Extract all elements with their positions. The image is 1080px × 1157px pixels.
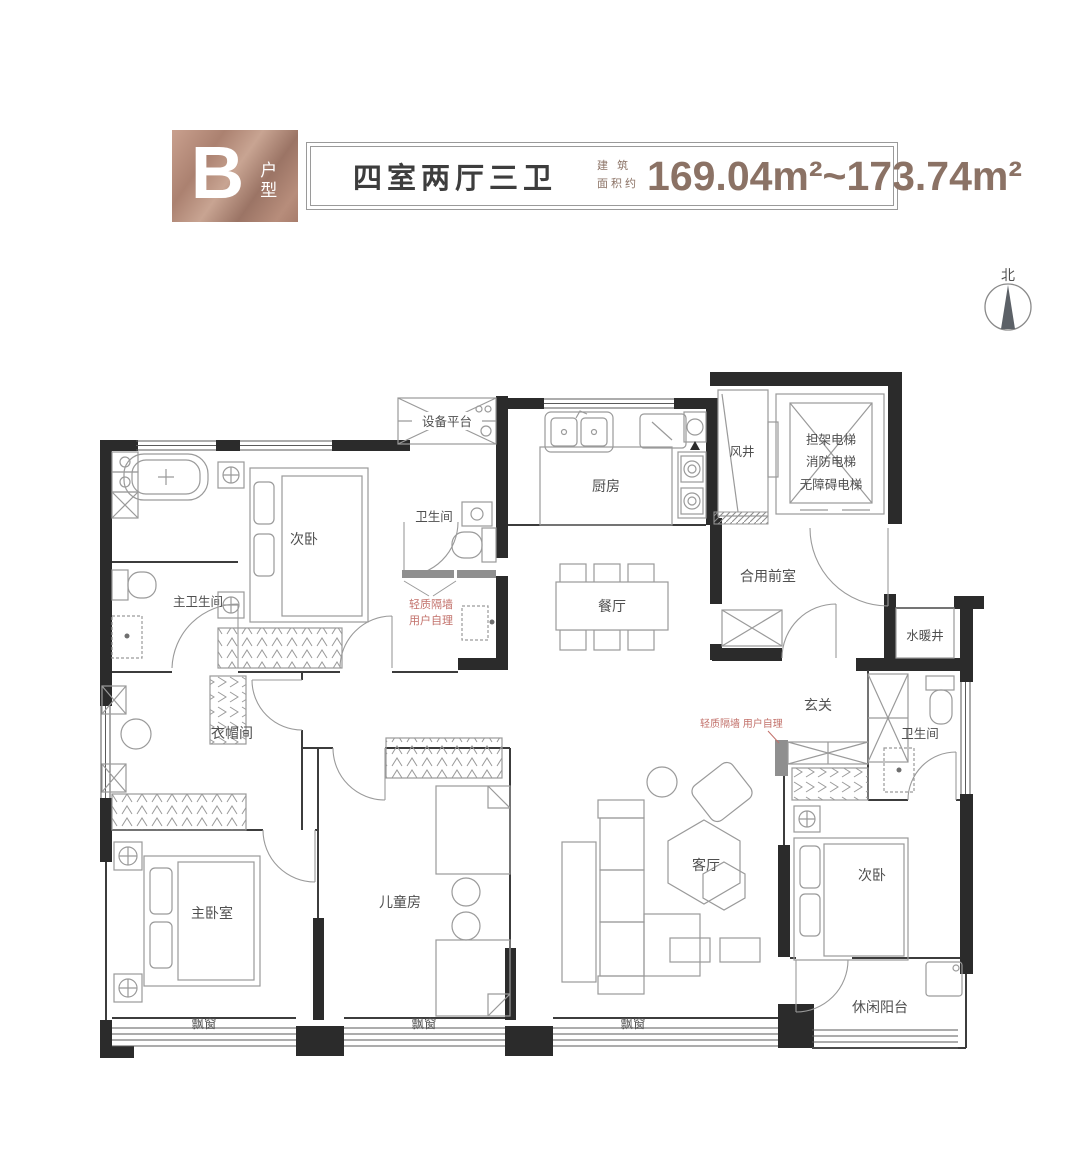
entry-label: 玄关 bbox=[804, 697, 832, 713]
dining-room: 餐厅 bbox=[556, 564, 668, 650]
master-bathroom-label: 主卫生间 bbox=[173, 595, 223, 609]
wind-shaft-label: 风井 bbox=[729, 445, 754, 459]
wind-shaft: 风井 bbox=[714, 390, 768, 524]
balcony-window-band bbox=[812, 1030, 958, 1048]
bathroom-top-label: 卫生间 bbox=[415, 510, 453, 524]
leisure-balcony: 休闲阳台 bbox=[852, 962, 962, 1015]
elevator-shaft: 担架电梯 消防电梯 无障碍电梯 bbox=[768, 394, 884, 514]
bathroom-right: 卫生间 bbox=[868, 674, 954, 792]
cloakroom-label: 衣帽间 bbox=[211, 725, 253, 741]
elevator-label-3: 无障碍电梯 bbox=[800, 477, 863, 492]
bedroom2-top: 次卧 bbox=[218, 462, 368, 668]
living-room-label: 客厅 bbox=[692, 857, 720, 873]
bathroom-right-label: 卫生间 bbox=[901, 727, 939, 741]
plumbing-shaft: 水暖井 bbox=[896, 608, 954, 658]
equipment-platform: 设备平台 bbox=[398, 398, 496, 444]
bay-window-band-living bbox=[553, 1028, 778, 1046]
partition-note-2: 轻质隔墙 用户自理 bbox=[700, 717, 783, 730]
bay-window-label-3: 飘窗 bbox=[620, 1017, 645, 1031]
bathroom-top: 卫生间 轻质隔墙 用户自理 bbox=[402, 502, 496, 640]
bay-window-label-1: 飘窗 bbox=[191, 1017, 216, 1031]
bay-window-labels: 飘窗 飘窗 飘窗 bbox=[191, 1017, 645, 1031]
leisure-balcony-label: 休闲阳台 bbox=[852, 999, 908, 1015]
area-prefix-line1: 建 筑 bbox=[597, 158, 639, 176]
floorplan-page: B 户型 四室两厅三卫 建 筑 面积约 169.04m²~173.74m² bbox=[0, 0, 1080, 1157]
shared-front-room: 合用前室 bbox=[722, 568, 796, 646]
unit-badge: B 户型 bbox=[172, 130, 298, 222]
unit-letter: B bbox=[191, 136, 244, 210]
shared-front-room-label: 合用前室 bbox=[740, 568, 796, 584]
dining-room-label: 餐厅 bbox=[598, 598, 626, 614]
area-prefix: 建 筑 面积约 bbox=[597, 158, 639, 193]
north-compass: 北 bbox=[985, 267, 1031, 330]
partition-note-line1: 轻质隔墙 bbox=[409, 597, 453, 611]
plumbing-shaft-label: 水暖井 bbox=[906, 629, 944, 643]
unit-suffix: 户型 bbox=[254, 161, 279, 201]
children-room: 儿童房 bbox=[379, 738, 510, 1016]
layout-label: 四室两厅三卫 bbox=[353, 155, 557, 197]
area-value: 169.04m²~173.74m² bbox=[647, 153, 1022, 200]
north-label: 北 bbox=[1001, 267, 1015, 283]
cloakroom: 衣帽间 bbox=[102, 676, 253, 830]
kitchen-label: 厨房 bbox=[592, 478, 620, 494]
elevator-label-2: 消防电梯 bbox=[806, 454, 856, 469]
bedroom2-top-label: 次卧 bbox=[290, 531, 318, 547]
area-prefix-line2: 面积约 bbox=[597, 176, 639, 194]
bedroom2-right-label: 次卧 bbox=[858, 867, 886, 883]
master-bedroom: 主卧室 bbox=[114, 842, 260, 1002]
kitchen: 厨房 bbox=[540, 411, 706, 525]
children-room-label: 儿童房 bbox=[379, 894, 421, 910]
bay-window-label-2: 飘窗 bbox=[411, 1017, 436, 1031]
equipment-platform-label: 设备平台 bbox=[422, 414, 472, 429]
bedroom2-right: 次卧 bbox=[794, 806, 908, 960]
living-room: 客厅 bbox=[562, 759, 760, 994]
master-bathroom: 主卫生间 bbox=[112, 452, 223, 658]
master-bedroom-label: 主卧室 bbox=[191, 905, 233, 921]
title-box: 四室两厅三卫 建 筑 面积约 169.04m²~173.74m² bbox=[306, 142, 898, 210]
elevator-label-1: 担架电梯 bbox=[806, 433, 856, 447]
partition-note-line2: 用户自理 bbox=[409, 613, 453, 627]
